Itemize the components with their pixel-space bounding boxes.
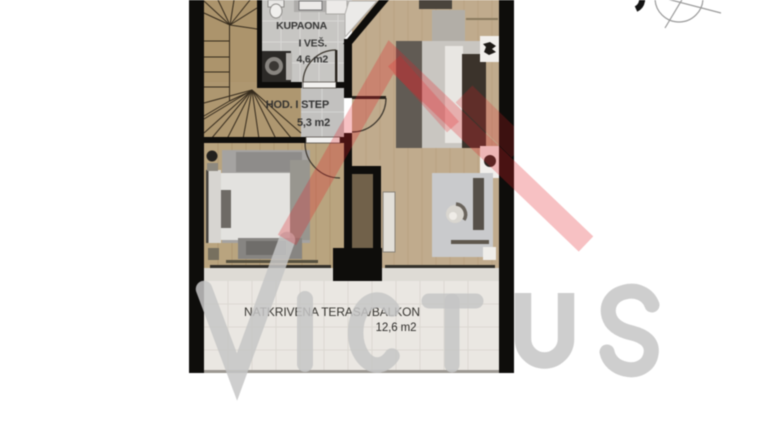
svg-text:4,6 m2: 4,6 m2 [297,54,329,66]
svg-text:KUPAONA: KUPAONA [276,20,328,32]
svg-text:12,6 m2: 12,6 m2 [376,322,417,334]
svg-text:HOD. I STEP: HOD. I STEP [266,99,329,111]
svg-text:5,3 m2: 5,3 m2 [297,117,330,129]
svg-text:I VEŠ.: I VEŠ. [298,37,327,50]
